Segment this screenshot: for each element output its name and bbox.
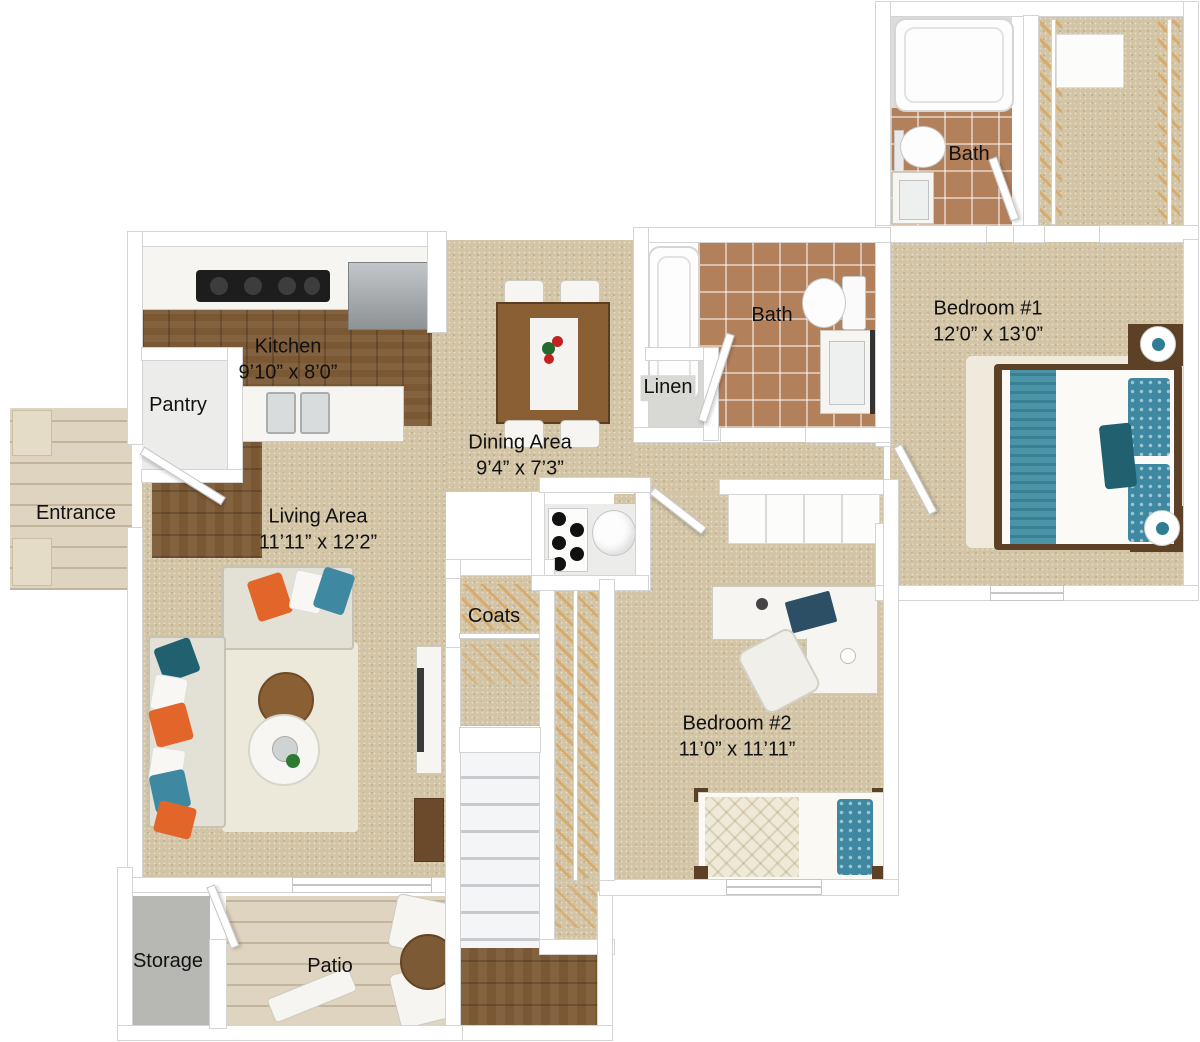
wall bbox=[210, 940, 226, 1028]
floor-plan: Kitchen9’10” x 8’0” Pantry Entrance Dini… bbox=[0, 0, 1200, 1042]
sink-basin bbox=[300, 392, 330, 434]
wall bbox=[142, 348, 238, 360]
deck-post bbox=[12, 538, 52, 586]
toilet bbox=[802, 278, 846, 328]
hanger-rack bbox=[556, 592, 598, 878]
storage-label: Storage bbox=[133, 949, 203, 975]
bed-post bbox=[694, 866, 708, 880]
wall bbox=[128, 528, 142, 892]
wall bbox=[446, 648, 460, 1028]
dresser bbox=[1056, 34, 1124, 88]
landing-wood-floor bbox=[460, 948, 598, 1028]
cooktop bbox=[196, 270, 330, 302]
wall bbox=[540, 560, 554, 948]
lamp bbox=[1140, 326, 1176, 362]
dining-table bbox=[496, 302, 610, 424]
wall bbox=[1184, 2, 1198, 240]
mug bbox=[840, 648, 856, 664]
hanger-rack bbox=[462, 644, 538, 684]
closet-rod bbox=[460, 634, 540, 638]
bath-hall-label: Bath bbox=[751, 303, 792, 329]
desk-lamp bbox=[756, 598, 768, 610]
bath-master-label: Bath bbox=[948, 142, 989, 168]
accent-pillow bbox=[1099, 423, 1138, 490]
wall bbox=[876, 226, 986, 242]
deck-post bbox=[12, 410, 52, 456]
closet-rod bbox=[1168, 20, 1171, 224]
bath-vanity bbox=[892, 172, 934, 224]
wall bbox=[876, 2, 1198, 16]
bedroom1-label: Bedroom #112’0” x 13’0” bbox=[933, 296, 1043, 347]
window bbox=[726, 879, 822, 895]
wall bbox=[720, 480, 898, 494]
bed bbox=[698, 792, 886, 882]
closet-rod bbox=[574, 590, 577, 880]
hanger-rack bbox=[546, 886, 600, 928]
dining-label: Dining Area9’4” x 7’3” bbox=[468, 430, 571, 481]
wall bbox=[646, 348, 708, 360]
wall bbox=[1184, 240, 1198, 600]
wall bbox=[876, 2, 890, 240]
wall bbox=[598, 892, 612, 1040]
wall bbox=[128, 232, 142, 444]
closet-rod bbox=[1052, 20, 1055, 224]
wall bbox=[532, 576, 648, 590]
sliding-door bbox=[292, 877, 432, 893]
wall bbox=[460, 728, 540, 752]
wall bbox=[806, 428, 890, 442]
window bbox=[990, 585, 1064, 601]
linen-label: Linen bbox=[641, 375, 696, 401]
coats-label: Coats bbox=[468, 604, 520, 630]
bath-vanity bbox=[820, 330, 876, 414]
side-table bbox=[248, 714, 320, 786]
closet-doors bbox=[728, 494, 880, 544]
refrigerator bbox=[348, 262, 428, 330]
cabinet bbox=[414, 798, 444, 862]
bedroom2-label: Bedroom #211’0” x 11’11” bbox=[679, 711, 796, 762]
patio-label: Patio bbox=[307, 954, 353, 980]
wall bbox=[884, 480, 898, 895]
living-label: Living Area11’11” x 12’2” bbox=[259, 504, 377, 555]
wall bbox=[446, 1026, 612, 1040]
wall bbox=[1024, 16, 1038, 226]
wall bbox=[428, 232, 446, 332]
tv bbox=[417, 668, 424, 752]
bed-runner bbox=[1010, 370, 1056, 544]
wall bbox=[876, 240, 890, 446]
wall bbox=[634, 228, 648, 442]
wall bbox=[600, 580, 614, 880]
wall bbox=[446, 560, 460, 578]
wall bbox=[118, 1026, 462, 1040]
washer bbox=[548, 508, 588, 572]
wall bbox=[128, 232, 446, 246]
bed-pillow bbox=[1128, 378, 1170, 456]
pantry-label: Pantry bbox=[149, 393, 207, 419]
bathtub bbox=[894, 18, 1014, 112]
sink-basin bbox=[266, 392, 296, 434]
wall bbox=[118, 868, 132, 1040]
stairs bbox=[460, 752, 540, 948]
toilet bbox=[900, 126, 946, 168]
kitchen-label: Kitchen9’10” x 8’0” bbox=[239, 334, 338, 385]
entrance-label: Entrance bbox=[36, 501, 116, 527]
wall bbox=[634, 228, 890, 242]
lamp bbox=[1144, 510, 1180, 546]
water-heater bbox=[592, 510, 636, 556]
wall bbox=[1014, 226, 1044, 242]
